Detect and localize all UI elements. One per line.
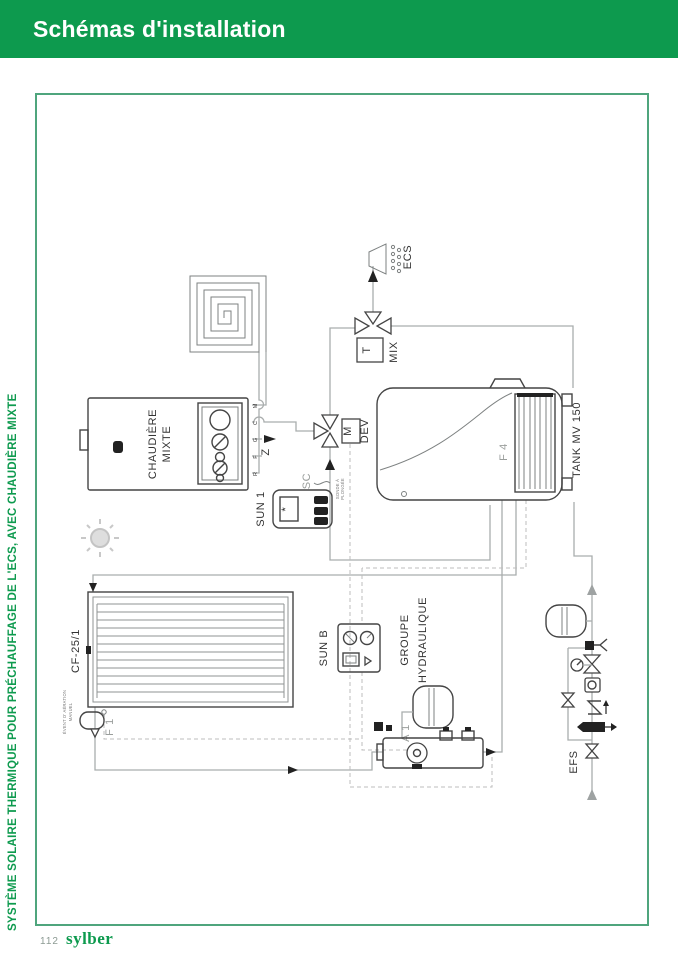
pipe-boiler-dhw <box>252 417 314 431</box>
boiler-knob-2-mark <box>214 436 226 448</box>
arrow-gas <box>264 435 276 443</box>
efs-bypass-valve-bottom <box>562 700 574 707</box>
arrow-up-ecs <box>368 270 378 282</box>
boiler-group: CHAUDIÈRE MIXTE M C G F R Z <box>80 398 272 490</box>
page-number: 112 <box>40 936 59 947</box>
brand-logo: sylber <box>66 929 113 949</box>
efs-bypass-valve-top <box>562 693 574 700</box>
dev-valve-bottom <box>322 433 338 447</box>
port-label-m: M <box>253 403 259 408</box>
efs-valve1-top <box>586 744 598 751</box>
sunb-button <box>365 657 371 665</box>
collector-port-mark <box>86 646 91 654</box>
tank-inner-shell <box>380 393 512 470</box>
sc-label: SC <box>301 473 313 489</box>
arrow-right-solar-return <box>288 766 298 774</box>
mix-label: MIX <box>388 341 400 362</box>
dev-label: DEV <box>359 419 371 443</box>
tank-label: TANK MV 150 <box>571 402 583 478</box>
sunb-controller: SUN B <box>318 624 380 672</box>
pump <box>407 743 427 763</box>
pipe-group-to-coil <box>483 500 502 752</box>
safety-valve-black-2 <box>386 725 392 731</box>
port-label-r: R <box>253 472 259 476</box>
dev-valve-top <box>322 415 338 429</box>
sun1-button-3 <box>314 517 328 525</box>
boiler-knob-1 <box>210 410 230 430</box>
tank-group: TANK MV 150 F 4 <box>377 379 583 500</box>
ecs-label: ECS <box>402 245 414 269</box>
arrow-right-group-out <box>486 748 496 756</box>
f4-label: F 4 <box>498 443 510 461</box>
floor-heating-spiral <box>190 276 266 352</box>
dev-valve-left <box>314 423 328 439</box>
page-footer: 112 sylber <box>40 929 113 949</box>
dev-valve-group: M DEV SC SONDE À PLONGÉE <box>301 415 371 500</box>
sun1-display-star: * <box>280 506 292 511</box>
efs-label: EFS <box>568 750 580 773</box>
port-label-f: F <box>253 455 259 459</box>
solar-collector-group: CF-25/1 ÉVENT D' AÉRATION MANUEL F 1 <box>62 592 293 737</box>
port-label-c: C <box>253 421 259 425</box>
pipe-efs-to-tank <box>574 502 592 583</box>
dev-motor-label: M <box>342 426 354 436</box>
sun1-button-1 <box>314 496 328 504</box>
sun1-label: SUN 1 <box>255 491 267 526</box>
pipe-dev-to-tank <box>330 447 490 560</box>
tank-body <box>377 388 562 500</box>
mix-valve-right <box>377 318 391 334</box>
port-label-g: G <box>253 438 259 442</box>
mix-valve-left <box>355 318 369 334</box>
efs-filter <box>583 722 605 732</box>
pipe-tank-to-mix <box>391 326 573 388</box>
arrow-up-efs-top <box>587 584 597 595</box>
sun1-controller: * SUN 1 <box>255 490 332 528</box>
pipes <box>89 266 597 800</box>
sun-icon <box>81 519 119 557</box>
sun1-button-2 <box>314 507 328 515</box>
safety-valve-black <box>374 722 383 731</box>
pump-lug <box>412 764 422 769</box>
collector-body <box>88 592 293 707</box>
tank-foot <box>490 379 525 388</box>
sunb-display <box>343 653 359 666</box>
sunb-label: SUN B <box>318 630 330 667</box>
air-vent: ÉVENT D' AÉRATION MANUEL <box>62 690 104 737</box>
shower-icon <box>369 244 401 274</box>
boiler-knob-4-mark <box>215 463 225 473</box>
sunb-display-inner <box>346 656 356 663</box>
group-label-1: GROUPE <box>399 614 411 665</box>
collector-inner <box>93 597 288 702</box>
collector-label: CF-25/1 <box>70 629 82 673</box>
efs-check-valve <box>588 701 601 714</box>
cable-f1 <box>104 717 362 739</box>
boiler-panel <box>198 403 242 484</box>
f1-sensor <box>102 710 106 714</box>
vent-note-1: ÉVENT D' AÉRATION <box>62 690 67 734</box>
arrow-up-efs-bottom <box>587 789 597 800</box>
spiral-coil <box>190 276 266 352</box>
pipe-coil-to-collector <box>93 500 516 592</box>
pump-manifold <box>383 738 483 768</box>
arrow-down-collector <box>89 583 97 592</box>
tank-drain <box>402 492 407 497</box>
boiler-panel-inner <box>202 407 238 480</box>
f1-label: F 1 <box>104 718 116 736</box>
efs-valve2-top <box>584 655 600 664</box>
a1-label: A 1 <box>400 724 412 742</box>
efs-line-group: EFS <box>546 605 617 774</box>
air-vent-tip <box>91 729 99 737</box>
manual-page: Schémas d'installation SYSTÈME SOLAIRE T… <box>0 0 678 959</box>
discharge-funnel <box>594 639 607 651</box>
boiler-knob-3 <box>216 453 225 462</box>
efs-pressure-reducer <box>585 678 600 692</box>
arrow-up-dev <box>325 459 335 470</box>
dashed-cables <box>104 444 526 787</box>
pipe-dev-to-mix <box>330 328 355 415</box>
mix-valve-group: T MIX ECS <box>355 244 414 363</box>
efs-expansion-vessel <box>546 605 586 637</box>
tank-fitting-bottom <box>562 478 572 490</box>
boiler-left-fitting <box>80 430 88 450</box>
efs-valve1-bottom <box>586 751 598 758</box>
boiler-vent <box>113 441 123 453</box>
gas-label: Z <box>260 448 272 455</box>
installation-schematic: CHAUDIÈRE MIXTE M C G F R Z <box>0 0 678 959</box>
group-label-2: HYDRAULIQUE <box>417 597 429 683</box>
hydraulic-group: A 1 <box>374 686 483 769</box>
air-vent-body <box>80 712 104 729</box>
mix-valve-top <box>365 312 381 324</box>
boiler-label-2: MIXTE <box>161 426 173 463</box>
vent-note-2: MANUEL <box>68 702 73 721</box>
efs-safety-group <box>585 641 594 650</box>
efs-check-arrow <box>603 700 609 706</box>
mix-t-label: T <box>361 346 373 353</box>
shower-head <box>369 244 386 274</box>
sc-cable <box>314 482 330 485</box>
tank-coil-top <box>517 393 553 397</box>
solar-expansion-vessel <box>413 686 453 728</box>
sc-note-2: PLONGÉE <box>340 478 345 500</box>
boiler-label-1: CHAUDIÈRE <box>146 409 159 479</box>
